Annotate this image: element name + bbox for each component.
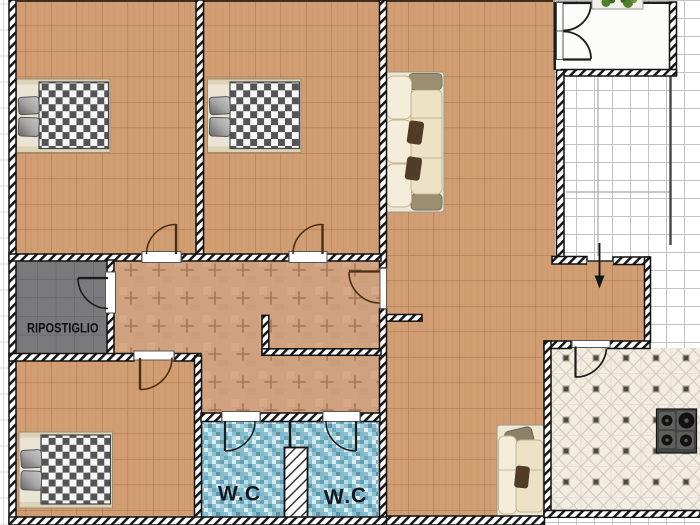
svg-text:W.C: W.C [323,484,368,510]
svg-text:W.C: W.C [218,483,261,506]
svg-text:RIPOSTIGLIO: RIPOSTIGLIO [27,320,99,336]
